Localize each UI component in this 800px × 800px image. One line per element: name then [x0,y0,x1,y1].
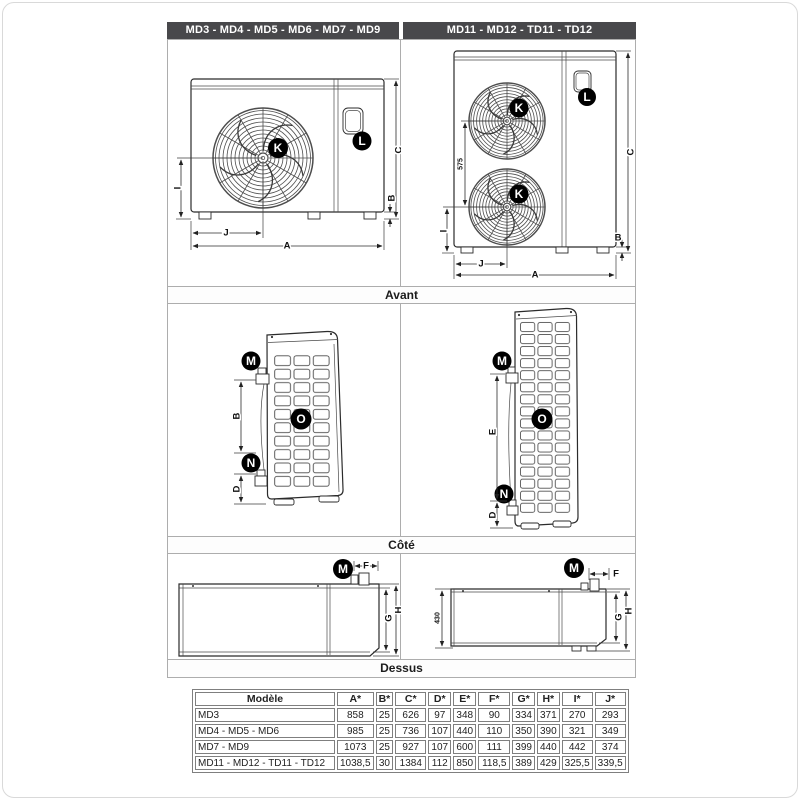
label-K: K [515,187,524,201]
side-view-right-cell: M N O E D [401,304,635,536]
pipe-fitting [507,506,518,515]
foot [319,496,339,502]
cell-D: 97 [428,708,451,722]
model-name: MD11 - MD12 - TD11 - TD12 [195,756,335,770]
table-header-row: Modèle A* B* C* D* E* F* G* H* I* J* [195,692,626,706]
foot [572,646,581,651]
access-door [343,108,363,134]
pipe-fitting [257,470,265,476]
foot [364,212,376,219]
col-header-G: G* [512,692,535,706]
foot [553,521,571,527]
label-O: O [296,412,305,426]
foot [556,247,568,253]
label-M-badge: M [242,352,261,371]
pipe-fitting [506,373,518,383]
dim-B: B [384,194,398,227]
header-left-models: MD3 - MD4 - MD5 - MD6 - MD7 - MD9 [167,22,399,39]
dim-I-label: I [439,230,450,233]
model-headers: MD3 - MD4 - MD5 - MD6 - MD7 - MD9 MD11 -… [167,22,636,39]
header-right-models: MD11 - MD12 - TD11 - TD12 [403,22,636,39]
cell-E: 600 [453,740,476,754]
pipe-fitting [508,367,515,373]
dimensions-table: Modèle A* B* C* D* E* F* G* H* I* J* MD3… [192,689,629,773]
dim-D-label: D [488,511,499,518]
cell-G: 334 [512,708,535,722]
unit-body [179,573,379,656]
cell-I: 321 [562,724,593,738]
label-K-badge: K [268,138,288,158]
foot [199,212,211,219]
section-label-top: Dessus [168,659,635,677]
cell-D: 112 [428,756,451,770]
cell-A: 1073 [337,740,374,754]
dim-B-label: B [232,412,243,419]
label-K: K [274,141,283,155]
pipe-fitting [258,368,266,374]
unit-body [451,579,606,651]
pipe-fitting [581,583,588,590]
col-header-C: C* [395,692,426,706]
label-N: N [500,487,509,501]
model-name: MD4 - MD5 - MD6 [195,724,335,738]
pipe-line [509,383,511,500]
dim-B: B [615,233,627,262]
col-header-A: A* [337,692,374,706]
cell-I: 270 [562,708,593,722]
cell-B: 30 [376,756,394,770]
cell-B: 25 [376,708,394,722]
dim-430-label: 430 [435,612,442,624]
label-O: O [537,412,546,426]
dim-F-label: F [613,569,619,580]
cell-E: 850 [453,756,476,770]
front-view-left-cell: K L C B [168,40,401,286]
cell-J: 349 [595,724,626,738]
dim-G-label: G [384,614,395,621]
side-view-left-svg: M N O B D [168,304,401,536]
dim-430: 430 [435,589,454,648]
foot [308,212,320,219]
label-M: M [497,354,507,368]
foot [587,646,596,651]
label-L-badge: L [353,132,372,151]
label-N-badge: N [242,454,261,473]
col-header-E: E* [453,692,476,706]
cell-C: 626 [395,708,426,722]
cell-H: 440 [537,740,560,754]
dimensions-diagram-panel: MD3 - MD4 - MD5 - MD6 - MD7 - MD9 MD11 -… [167,22,636,678]
cell-F: 111 [478,740,510,754]
col-header-B: B* [376,692,394,706]
foot [461,247,473,253]
dim-J-label: J [478,259,483,270]
cell-C: 927 [395,740,426,754]
side-view-row: M N O B D [168,304,635,536]
pipe-fitting [590,579,599,591]
cell-D: 107 [428,740,451,754]
dim-C: C [616,51,635,253]
section-label-front: Avant [168,286,635,304]
top-view-right-svg: M F G [401,554,635,659]
cell-F: 90 [478,708,510,722]
top-view-left-svg: M F G [168,554,401,659]
cell-I: 325,5 [562,756,593,770]
cell-E: 348 [453,708,476,722]
foot [597,247,609,253]
dim-B-label: B [615,233,622,244]
label-M-badge: M [564,558,584,578]
dim-C-label: C [394,146,402,153]
model-name: MD3 [195,708,335,722]
dim-A-label: A [284,241,291,252]
dim-F-label: F [363,561,369,572]
cell-C: 736 [395,724,426,738]
top-view-left-cell: M F G [168,554,401,659]
label-M-badge: M [493,352,512,371]
cell-D: 107 [428,724,451,738]
dim-C-label: C [626,148,636,155]
cell-G: 399 [512,740,535,754]
side-view-right-svg: M N O E D [401,304,635,536]
col-header-F: F* [478,692,510,706]
dim-I-label: I [173,187,184,190]
pipe-fitting [359,573,369,585]
label-O-badge: O [291,409,312,430]
dim-575-label: 575 [458,158,465,170]
cell-A: 1038,5 [337,756,374,770]
label-N: N [247,456,256,470]
cell-A: 858 [337,708,374,722]
cell-J: 339,5 [595,756,626,770]
cell-B: 25 [376,740,394,754]
dim-E-label: E [488,429,499,435]
views-box: K L C B [167,39,636,678]
table-row: MD7 - MD9 1073 25 927 107 600 111 399 44… [195,740,626,754]
label-L-badge: L [578,88,596,106]
dim-J-label: J [223,228,228,239]
unit-body [454,51,616,253]
dim-I: I [439,209,455,253]
dim-B-side: B [232,380,257,453]
cell-E: 440 [453,724,476,738]
dim-H-label: H [624,607,635,614]
cell-G: 389 [512,756,535,770]
front-view-left-svg: K L C B [168,40,401,286]
cell-J: 293 [595,708,626,722]
col-header-D: D* [428,692,451,706]
cell-A: 985 [337,724,374,738]
section-label-side: Côté [168,536,635,554]
pipe-line [261,384,264,470]
cell-H: 390 [537,724,560,738]
cell-H: 429 [537,756,560,770]
dim-F: F [589,568,619,580]
label-L: L [583,90,590,104]
label-O-badge: O [532,409,553,430]
dim-D-label: D [232,485,243,492]
dim-E: E [488,374,508,501]
table-row: MD11 - MD12 - TD11 - TD12 1038,5 30 1384… [195,756,626,770]
dim-A-label: A [532,270,539,281]
label-K: K [515,101,524,115]
dim-H-label: H [394,606,402,613]
foot [274,499,294,505]
cell-H: 371 [537,708,560,722]
dim-B-label: B [387,194,398,201]
cell-B: 25 [376,724,394,738]
cell-J: 374 [595,740,626,754]
table-row: MD4 - MD5 - MD6 985 25 736 107 440 110 3… [195,724,626,738]
front-view-right-cell: K K L C [401,40,635,286]
label-M: M [569,561,579,575]
manual-page: MD3 - MD4 - MD5 - MD6 - MD7 - MD9 MD11 -… [0,0,800,800]
cell-I: 442 [562,740,593,754]
cell-C: 1384 [395,756,426,770]
top-view-row: M F G [168,554,635,659]
col-header-H: H* [537,692,560,706]
col-header-I: I* [562,692,593,706]
front-view-row: K L C B [168,40,635,286]
label-M: M [338,562,348,576]
label-K-badge: K [510,99,529,118]
dim-F: F [354,561,378,572]
label-L: L [358,134,365,148]
top-view-right-cell: M F G [401,554,635,659]
cell-F: 110 [478,724,510,738]
cell-F: 118,5 [478,756,510,770]
col-header-model: Modèle [195,692,335,706]
pipe-fitting [255,476,267,486]
dim-A: A [193,221,384,252]
table-row: MD3 858 25 626 97 348 90 334 371 270 293 [195,708,626,722]
cell-G: 350 [512,724,535,738]
label-M: M [246,354,256,368]
pipe-fitting [351,575,358,584]
model-name: MD7 - MD9 [195,740,335,754]
side-view-left-cell: M N O B D [168,304,401,536]
label-K-badge: K [510,185,529,204]
front-view-right-svg: K K L C [401,40,635,286]
foot [521,523,539,529]
col-header-J: J* [595,692,626,706]
label-M-badge: M [333,559,353,579]
pipe-fitting [256,374,269,384]
